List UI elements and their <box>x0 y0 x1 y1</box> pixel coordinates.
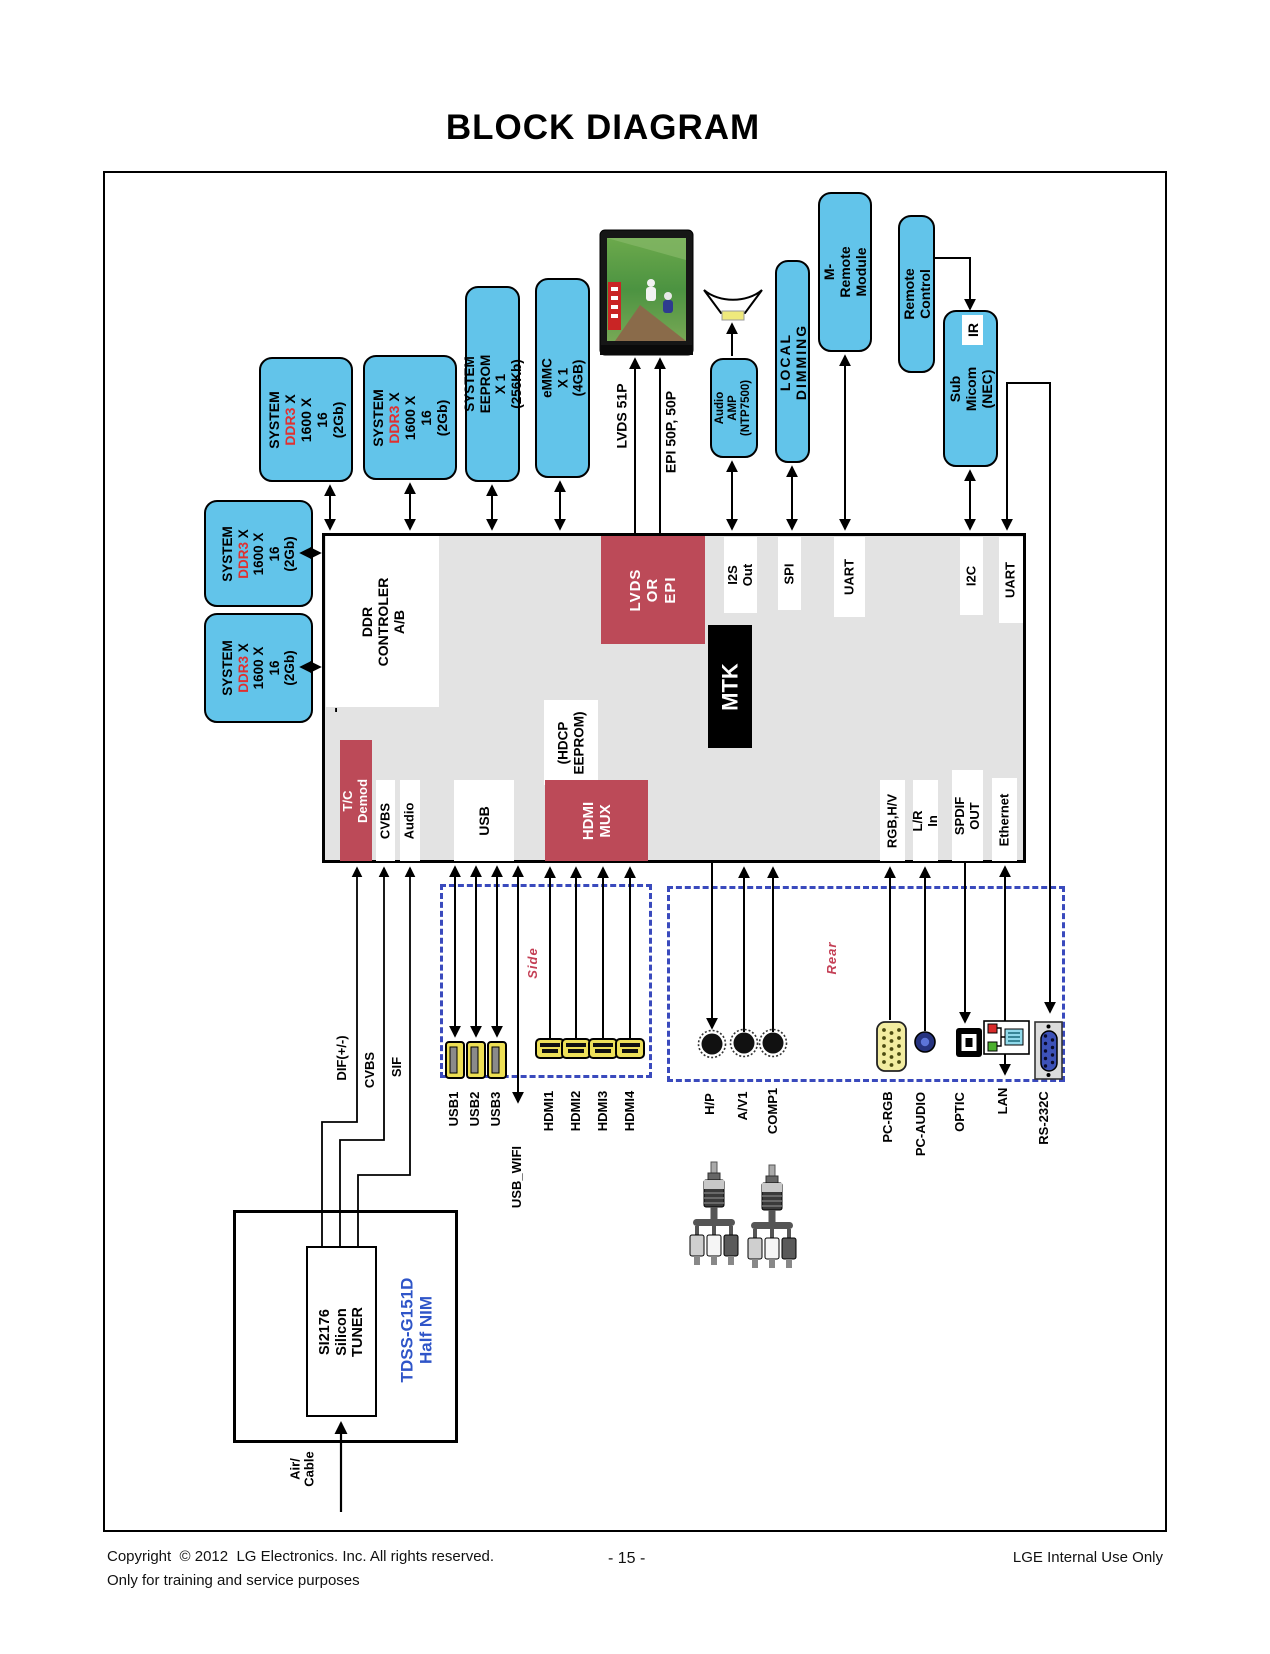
footer-page-number: - 15 - <box>608 1550 645 1568</box>
port-lvds-or-epi: LVDS OR EPI <box>601 536 705 644</box>
label-comp1: COMP1 <box>766 1088 780 1134</box>
block-system-ddr3-left-2: SYSTEMDDR3 X1600 X16(2Gb) <box>204 613 313 723</box>
port-uart-2: UART <box>999 537 1023 623</box>
port-i2c: I2C <box>960 537 983 615</box>
bus-label-dif: DIF(+/-) <box>335 1035 349 1080</box>
label-usb1: USB1 <box>447 1092 461 1127</box>
label-optic: OPTIC <box>953 1092 967 1132</box>
label-usb-wifi: USB_WIFI <box>510 1146 524 1208</box>
label-av1: A/V1 <box>736 1092 750 1121</box>
port-cvbs: CVBS <box>376 780 395 861</box>
port-hdmi-mux: HDMI MUX <box>545 780 648 861</box>
rear-label: Rear <box>825 942 839 975</box>
block-system-ddr3-top-1: SYSTEMDDR3 X1600 X 16(2Gb) <box>259 357 353 482</box>
block-local-dimming: LOCAL DIMMING <box>775 260 810 463</box>
block-audio-amp: Audio AMP (NTP7500) <box>710 358 758 458</box>
label-usb3: USB3 <box>489 1092 503 1127</box>
bus-label-cvbs: CVBS <box>363 1052 377 1088</box>
mtk-chip: MTK <box>708 625 752 748</box>
label-pc-audio: PC-AUDIO <box>914 1092 928 1156</box>
bus-label-lvds: LVDS 51P <box>614 383 629 448</box>
port-spi: SPI <box>778 537 801 610</box>
block-remote-control: Remote Control <box>898 215 935 373</box>
label-hdmi2: HDMI2 <box>569 1091 583 1131</box>
bus-label-epi: EPI 50P, 50P <box>663 391 678 473</box>
port-ethernet: Ethernet <box>992 778 1017 861</box>
footer-training: Only for training and service purposes <box>107 1572 360 1589</box>
block-m-remote-module: M-Remote Module <box>818 192 872 352</box>
bus-label-sif: SIF <box>390 1057 404 1077</box>
port-spdif-out: SPDIF OUT <box>952 770 983 861</box>
page: BLOCK DIAGRAM SYSTEMDDR3 X1600 X 16(2Gb)… <box>0 0 1270 1654</box>
footer-copyright: Copyright © 2012 LG Electronics. Inc. Al… <box>107 1548 494 1565</box>
dash-mark: - <box>327 707 345 712</box>
port-tc-demod: T/C Demod <box>340 740 372 861</box>
label-air-cable: Air/ Cable <box>289 1451 318 1486</box>
label-lan: LAN <box>996 1088 1010 1115</box>
port-i2s-out: I2S Out <box>724 537 757 613</box>
side-label: Side <box>526 947 540 978</box>
port-usb: USB <box>454 780 514 861</box>
label-hp: H/P <box>703 1093 717 1115</box>
side-connector-group <box>440 884 652 1078</box>
label-pc-rgb: PC-RGB <box>881 1091 895 1142</box>
label-usb2: USB2 <box>468 1092 482 1127</box>
port-rgb-hv: RGB,H/V <box>880 780 905 861</box>
block-system-ddr3-top-2: SYSTEMDDR3 X1600 X 16(2Gb) <box>363 355 457 480</box>
tuner-model-label: TDSS-G151D Half NIM <box>398 1278 435 1383</box>
port-hdcp-eeprom: (HDCP EEPROM) <box>544 700 598 785</box>
label-rs232c: RS-232C <box>1037 1091 1051 1144</box>
footer-internal-use: LGE Internal Use Only <box>963 1549 1163 1566</box>
label-hdmi4: HDMI4 <box>623 1091 637 1131</box>
ir-port: IR <box>962 315 983 345</box>
block-system-ddr3-left-1: SYSTEMDDR3 X1600 X16(2Gb) <box>204 500 313 607</box>
page-title: BLOCK DIAGRAM <box>446 108 760 148</box>
port-audio: Audio <box>400 780 420 861</box>
label-hdmi1: HDMI1 <box>542 1091 556 1131</box>
block-system-eeprom: SYSTEM EEPROM X 1 (256Kb) <box>465 286 520 482</box>
label-hdmi3: HDMI3 <box>596 1091 610 1131</box>
tuner-ic-box: SI2176 Silicon TUNER <box>306 1246 377 1417</box>
rear-connector-group <box>667 886 1065 1082</box>
port-uart-1: UART <box>834 537 865 617</box>
port-ddr-controller: DDR CONTROLER A/B <box>326 536 439 707</box>
port-lr-in: L/R In <box>913 780 938 861</box>
block-emmc: eMMC X 1 (4GB) <box>535 278 590 478</box>
